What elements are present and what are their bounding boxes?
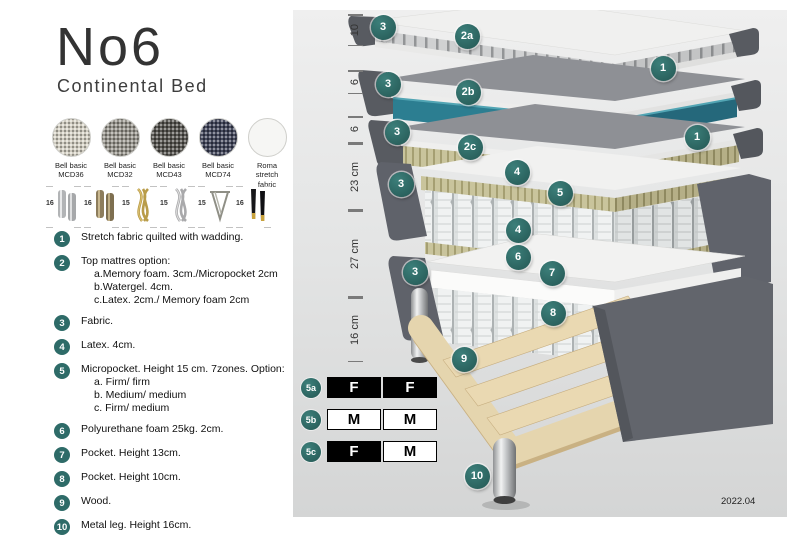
dimension-tick — [348, 210, 363, 212]
leg-height-label: 15 — [122, 200, 130, 207]
version-label: 2022.04 — [721, 496, 755, 507]
dimension-label: 6 — [343, 116, 367, 143]
diagram-callout: 1 — [685, 125, 710, 150]
legend-item-number: 3 — [54, 315, 70, 331]
leg-height-label: 16 — [236, 200, 244, 207]
legend-list: 1Stretch fabric quilted with wadding.2To… — [54, 231, 286, 535]
legend-item-text: Metal leg. Height 16cm. — [81, 519, 191, 532]
legend-item: 7Pocket. Height 13cm. — [54, 447, 286, 463]
legend-item-text: Micropocket. Height 15 cm. 7zones. Optio… — [81, 363, 285, 415]
legend-item: 6Polyurethane foam 25kg. 2cm. — [54, 423, 286, 439]
legend-item-number: 8 — [54, 471, 70, 487]
leg-icon-black-gold-tip — [244, 185, 272, 230]
fabric-swatch-label: Bell basicMCD36 — [55, 161, 87, 180]
fabric-swatch-circle — [52, 118, 91, 157]
dimension-tick — [348, 297, 363, 299]
legend-item-number: 9 — [54, 495, 70, 511]
diagram-callout: 3 — [403, 260, 428, 285]
fabric-swatch-circle — [248, 118, 287, 157]
legend-item-number: 1 — [54, 231, 70, 247]
leg-height-label: 15 — [160, 200, 168, 207]
legend-item-text: Polyurethane foam 25kg. 2cm. — [81, 423, 223, 436]
diagram-callout: 3 — [371, 15, 396, 40]
diagram-callout: 4 — [506, 218, 531, 243]
fabric-swatch-circle — [101, 118, 140, 157]
firmness-cell: F — [327, 441, 381, 462]
firmness-cell: M — [383, 409, 437, 430]
dimension-text: 23 cm — [349, 162, 361, 192]
diagram-callout: 7 — [540, 261, 565, 286]
dimension-tick — [348, 45, 363, 47]
legend-item: 8Pocket. Height 10cm. — [54, 471, 286, 487]
page-subtitle: Continental Bed — [57, 76, 208, 97]
fabric-swatch-label: Bell basicMCD74 — [202, 161, 234, 180]
dimension-tick — [348, 93, 363, 95]
leg-options-row: 161615151516 — [46, 186, 271, 228]
dimension-text: 6 — [349, 79, 361, 85]
page-title: No6 — [56, 16, 164, 78]
fabric-swatch: Romastretch fabric — [246, 118, 288, 189]
diagram-callout: 2a — [455, 24, 480, 49]
dimension-tick — [348, 361, 363, 363]
legend-item: 4Latex. 4cm. — [54, 339, 286, 355]
firmness-row-label: 5a — [301, 378, 321, 398]
leg-icon-cylinder-bronze — [92, 185, 120, 230]
dimension-text: 6 — [349, 126, 361, 132]
legend-item: 9Wood. — [54, 495, 286, 511]
firmness-row: 5bMM — [301, 409, 437, 430]
firmness-cell: M — [383, 441, 437, 462]
diagram-callout: 10 — [465, 464, 490, 489]
left-panel: No6 Continental Bed Bell basicMCD36Bell … — [0, 0, 293, 533]
fabric-swatch-label: Bell basicMCD32 — [104, 161, 136, 180]
leg-icon-twisted-gold — [130, 185, 158, 230]
fabric-swatch-label: Bell basicMCD43 — [153, 161, 185, 180]
firmness-row-label: 5b — [301, 410, 321, 430]
firmness-cell: F — [383, 377, 437, 398]
firmness-row-label: 5c — [301, 442, 321, 462]
legend-item-number: 2 — [54, 255, 70, 271]
legend-item-text: Fabric. — [81, 315, 113, 328]
legend-item: 2Top mattres option:a.Memory foam. 3cm./… — [54, 255, 286, 307]
leg-height-label: 16 — [46, 200, 54, 207]
leg-option: 16 — [84, 186, 119, 228]
leg-option: 15 — [160, 186, 195, 228]
firmness-row: 5aFF — [301, 377, 437, 398]
fabric-swatch: Bell basicMCD36 — [50, 118, 92, 189]
legend-item-text: Wood. — [81, 495, 111, 508]
dimension-tick — [348, 143, 363, 145]
legend-item-text: Pocket. Height 10cm. — [81, 471, 181, 484]
legend-item-number: 7 — [54, 447, 70, 463]
leg-height-label: 15 — [198, 200, 206, 207]
legend-item-text: Stretch fabric quilted with wadding. — [81, 231, 243, 244]
legend-item: 1Stretch fabric quilted with wadding. — [54, 231, 286, 247]
dimension-tick — [348, 116, 363, 118]
leg-option: 16 — [46, 186, 81, 228]
legend-item: 5Micropocket. Height 15 cm. 7zones. Opti… — [54, 363, 286, 415]
dimension-text: 10 — [349, 24, 361, 36]
legend-item-text: Pocket. Height 13cm. — [81, 447, 181, 460]
fabric-swatch: Bell basicMCD74 — [197, 118, 239, 189]
fabric-swatch-circle — [150, 118, 189, 157]
leg-icon-cylinder-silver — [54, 185, 82, 230]
dimension-label: 27 cm — [343, 210, 367, 297]
legend-item-number: 5 — [54, 363, 70, 379]
fabric-cover-right — [593, 276, 773, 442]
fabric-swatch-row: Bell basicMCD36Bell basicMCD32Bell basic… — [50, 118, 288, 189]
diagram-callout: 5 — [548, 181, 573, 206]
dimension-label: 6 — [343, 70, 367, 94]
firmness-row: 5cFM — [301, 441, 437, 462]
leg-icon-hairpin — [206, 185, 234, 230]
leg-option: 15 — [122, 186, 157, 228]
diagram-callout: 3 — [385, 120, 410, 145]
leg-icon-twisted-silver — [168, 185, 196, 230]
dimension-text: 16 cm — [349, 315, 361, 345]
diagram-callout: 2b — [456, 80, 481, 105]
dimension-tick — [348, 70, 363, 72]
fabric-swatch: Bell basicMCD43 — [148, 118, 190, 189]
legend-item-number: 6 — [54, 423, 70, 439]
legend-item: 3Fabric. — [54, 315, 286, 331]
dimension-label: 23 cm — [343, 143, 367, 210]
dimension-label: 10 — [343, 14, 367, 46]
legend-item-number: 4 — [54, 339, 70, 355]
legend-item-text: Top mattres option:a.Memory foam. 3cm./M… — [81, 255, 278, 307]
dimension-tick — [348, 14, 363, 16]
diagram-callout: 8 — [541, 301, 566, 326]
diagram-callout: 3 — [389, 172, 414, 197]
fabric-swatch: Bell basicMCD32 — [99, 118, 141, 189]
firmness-cell: M — [327, 409, 381, 430]
diagram-callout: 9 — [452, 347, 477, 372]
diagram-callout: 4 — [505, 160, 530, 185]
diagram-panel: 5aFF5bMM5cFM 2022.04 32a132b32c134543678… — [293, 10, 787, 517]
leg-option: 16 — [236, 186, 271, 228]
firmness-cell: F — [327, 377, 381, 398]
leg-height-label: 16 — [84, 200, 92, 207]
diagram-callout: 1 — [651, 56, 676, 81]
legend-item-text: Latex. 4cm. — [81, 339, 135, 352]
diagram-callout: 3 — [376, 72, 401, 97]
leg-option: 15 — [198, 186, 233, 228]
dimension-label: 16 cm — [343, 297, 367, 362]
diagram-callout: 2c — [458, 135, 483, 160]
diagram-callout: 6 — [506, 245, 531, 270]
fabric-swatch-circle — [199, 118, 238, 157]
dimension-text: 27 cm — [349, 239, 361, 269]
